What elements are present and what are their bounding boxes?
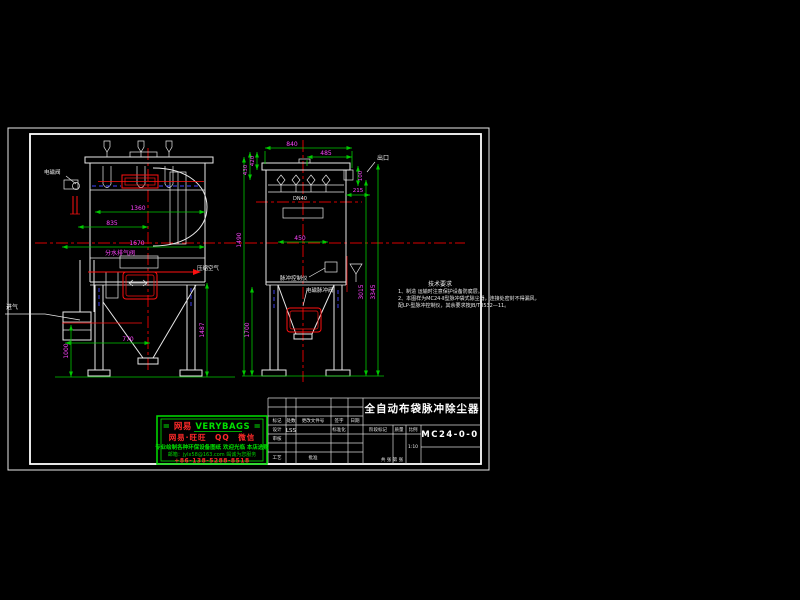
label-pipe-spec: DN40 bbox=[293, 196, 307, 202]
drawing-number: MC24-0-0 bbox=[421, 430, 478, 440]
watermark-line-3: 专业绘制各种环保设备图纸 欢迎光临 本店选购 bbox=[155, 443, 269, 451]
title-block: 标记 处数 更改文件号 签字 日期 设计 LSS 标准化 审核 工艺 批准 阶段… bbox=[268, 398, 481, 464]
cad-drawing: 1360 835 1670 770 1000 1487 电磁阀 分水排气阀 压缩… bbox=[0, 0, 800, 600]
dim-side-450: 450 bbox=[294, 235, 306, 242]
watermark-line-2: 网易·旺旺 QQ 微信 bbox=[169, 432, 256, 442]
tb-col-count: 处数 bbox=[287, 417, 296, 424]
separator-funnel bbox=[350, 264, 362, 274]
watermark-line-1: = 网易 VERYBAGS = bbox=[163, 421, 261, 432]
tb-col-date: 日期 bbox=[351, 418, 360, 424]
tb-col-doc: 更改文件号 bbox=[302, 417, 325, 424]
front-filter-bags bbox=[103, 166, 173, 188]
pulse-controller-box bbox=[325, 262, 337, 272]
dim-side-1490: 1490 bbox=[236, 232, 243, 247]
tb-check-label: 审核 bbox=[273, 435, 282, 442]
label-outlet: 出口 bbox=[377, 154, 389, 162]
watermark-line-5: +86-138-5288-8518 bbox=[174, 458, 249, 465]
dim-side-3015: 3015 bbox=[358, 284, 365, 299]
label-drain-vent-valve: 分水排气阀 bbox=[105, 249, 135, 257]
tb-approve-label: 批准 bbox=[309, 454, 318, 461]
front-roof-valves bbox=[104, 141, 172, 157]
front-hidden-lines bbox=[92, 186, 199, 306]
dim-side-100: 100 bbox=[358, 170, 364, 181]
tb-scale-value: 1:10 bbox=[408, 444, 418, 450]
label-pulse-valve: 电磁脉冲阀 bbox=[306, 286, 334, 294]
dim-side-1700: 1700 bbox=[244, 322, 251, 337]
dim-front-1000: 1000 bbox=[63, 343, 70, 358]
tb-sheet-info: 共 张 第 张 bbox=[381, 456, 404, 463]
front-red-details bbox=[62, 175, 204, 323]
cad-canvas: 1360 835 1670 770 1000 1487 电磁阀 分水排气阀 压缩… bbox=[0, 0, 800, 600]
front-hopper bbox=[103, 285, 196, 364]
tb-process-label: 工艺 bbox=[273, 455, 282, 461]
drawing-title: 全自动布袋脉冲除尘器 bbox=[364, 402, 480, 415]
tb-scale-label: 比例 bbox=[409, 426, 418, 433]
tb-design-value: LSS bbox=[286, 428, 297, 434]
dim-side-3345: 3345 bbox=[370, 284, 377, 299]
side-legs bbox=[262, 285, 350, 376]
front-view-dimensions: 1360 835 1670 770 1000 1487 bbox=[55, 205, 235, 377]
notes-line-3: 配LP-型脉冲控制仪，其余要求按JB/T8532—11。 bbox=[398, 302, 509, 309]
dim-front-770: 770 bbox=[122, 336, 134, 343]
tb-col-sign: 签字 bbox=[335, 417, 344, 424]
dim-side-430: 430 bbox=[243, 164, 249, 175]
label-compressed-air: 压缩空气 bbox=[197, 264, 220, 272]
tb-design-label: 设计 bbox=[273, 426, 282, 433]
dim-side-840: 840 bbox=[286, 141, 298, 148]
notes-block: 技术要求 1、制造 运输时注意保护设备防腐层。 2、本图样为MC24-Ⅱ型脉冲袋… bbox=[398, 280, 540, 309]
tb-col-mark: 标记 bbox=[273, 417, 282, 424]
tb-weight-label: 质量 bbox=[395, 426, 404, 433]
tb-stage-label: 阶段标记 bbox=[369, 426, 387, 433]
notes-line-1: 1、制造 运输时注意保护设备防腐层。 bbox=[398, 288, 483, 295]
label-solenoid-valve: 电磁阀 bbox=[44, 168, 61, 176]
label-pulse-controller: 脉冲控制仪 bbox=[280, 274, 308, 282]
tb-standard-label: 标准化 bbox=[332, 426, 346, 433]
front-view bbox=[5, 141, 213, 376]
watermark-box: = 网易 VERYBAGS = 网易·旺旺 QQ 微信 专业绘制各种环保设备图纸… bbox=[155, 416, 269, 465]
notes-line-2: 2、本图样为MC24-Ⅱ型脉冲袋式除尘器，连接处密封不得漏风， bbox=[398, 295, 540, 302]
dim-front-1670: 1670 bbox=[129, 240, 144, 247]
label-inlet: 进气 bbox=[6, 303, 18, 311]
front-scroll-arc bbox=[153, 168, 207, 246]
dim-front-1360: 1360 bbox=[130, 205, 145, 212]
dim-front-1487: 1487 bbox=[199, 322, 206, 337]
dim-side-420: 420 bbox=[250, 155, 256, 166]
dim-side-485: 485 bbox=[320, 150, 332, 157]
dim-front-835: 835 bbox=[106, 220, 118, 227]
outlet-flange bbox=[344, 170, 353, 180]
notes-heading: 技术要求 bbox=[428, 280, 452, 288]
dim-side-215: 215 bbox=[353, 188, 364, 194]
